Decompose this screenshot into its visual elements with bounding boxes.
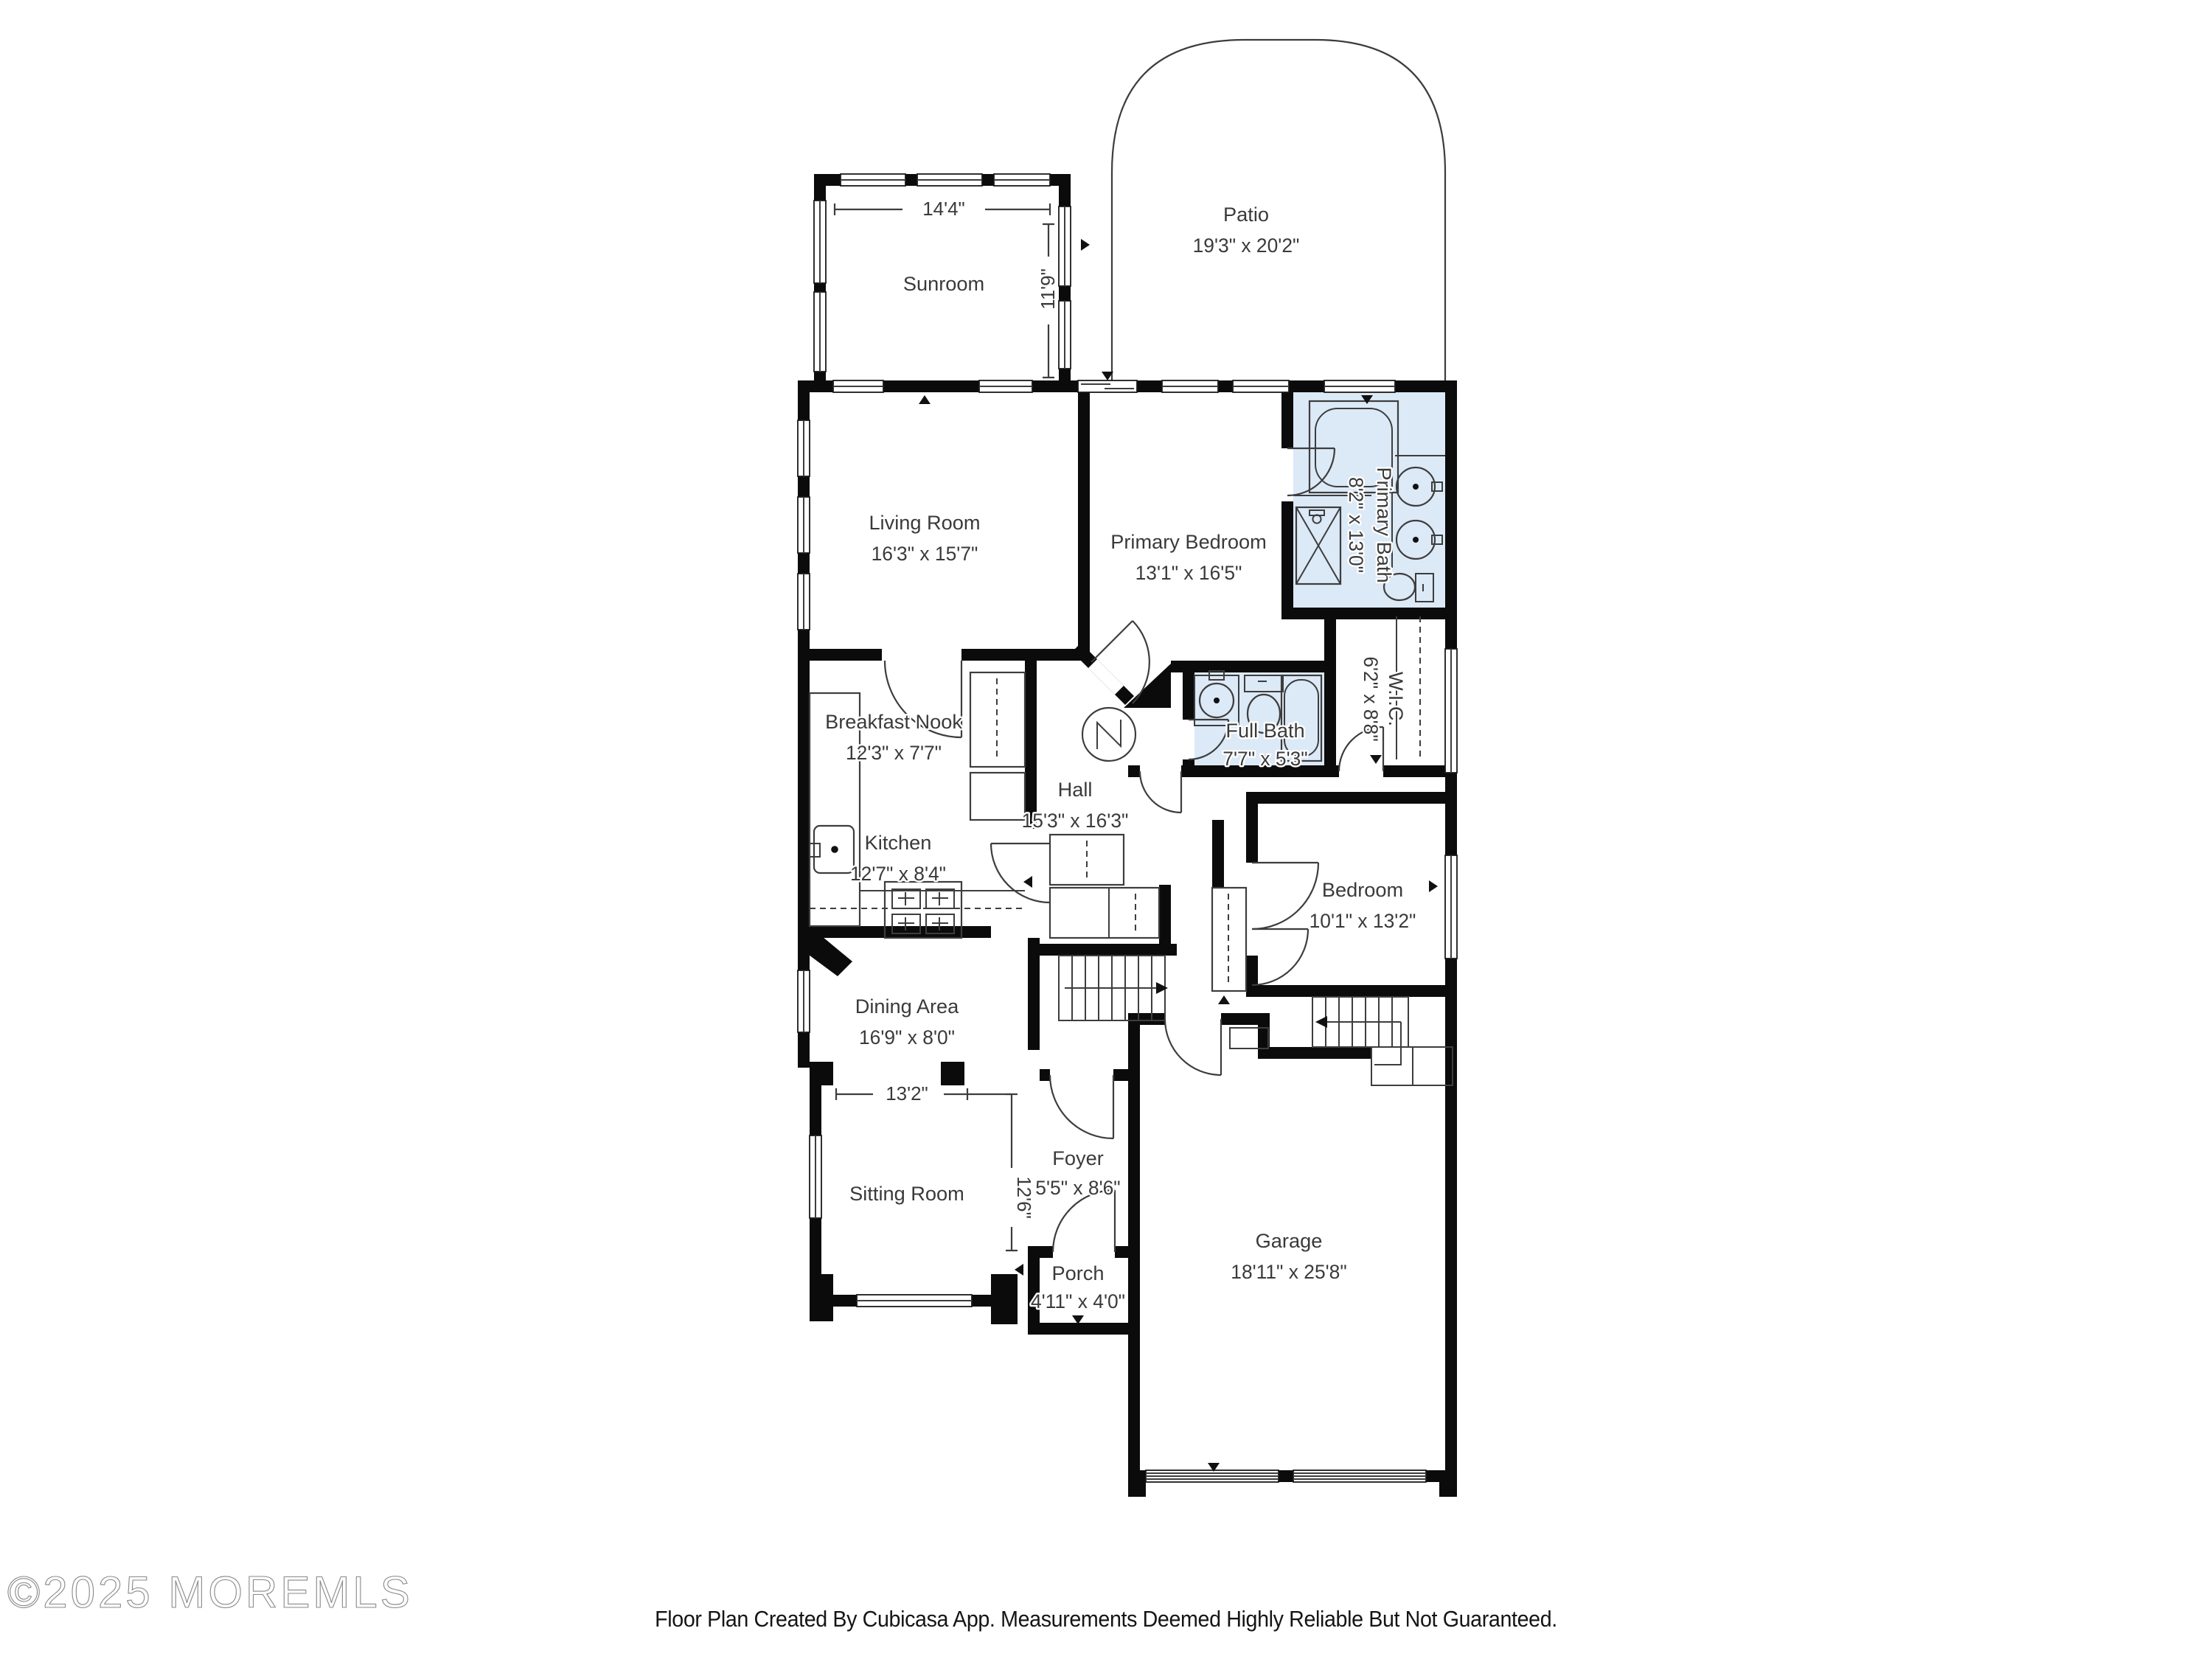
room-label-living-room: Living Room — [869, 511, 980, 534]
room-dims-kitchen: 12'7" x 8'4" — [850, 863, 946, 885]
room-dims-hall: 15'3" x 16'3" — [1022, 810, 1129, 832]
dimension-foyer-depth: 12'6" — [1013, 1176, 1035, 1219]
room-dims-living-room: 16'3" x 15'7" — [872, 543, 978, 565]
room-label-foyer: Foyer — [1052, 1147, 1104, 1169]
room-dims-wic: 6'2" x 8'8" — [1360, 656, 1382, 741]
room-label-sitting-room: Sitting Room — [849, 1182, 964, 1205]
room-dims-bedroom: 10'1" x 13'2" — [1310, 910, 1416, 932]
room-dims-garage: 18'11" x 25'8" — [1231, 1261, 1346, 1283]
dimension-sunroom-depth: 11'9" — [1037, 268, 1059, 310]
room-label-full-bath: Full Bath — [1225, 719, 1304, 742]
room-label-primary-bedroom: Primary Bedroom — [1110, 530, 1267, 553]
watermark: ©2025 MOREMLS — [7, 1568, 413, 1617]
floor-plan-page: 14'4" 11'9" 13'2" 12'6" Sunroom Patio 19… — [0, 0, 2212, 1659]
room-dims-primary-bath: 8'2" x 13'0" — [1345, 477, 1367, 573]
room-label-wic: W.I.C. — [1385, 672, 1408, 726]
room-dims-dining-area: 16'9" x 8'0" — [859, 1026, 955, 1048]
room-label-primary-bath: Primary Bath — [1373, 467, 1396, 582]
room-dims-porch: 4'11" x 4'0" — [1031, 1290, 1125, 1312]
room-label-breakfast-nook: Breakfast Nook — [825, 710, 962, 733]
room-dims-primary-bedroom: 13'1" x 16'5" — [1135, 562, 1242, 584]
room-dims-breakfast-nook: 12'3" x 7'7" — [846, 742, 942, 764]
room-dims-full-bath: 7'7" x 5'3" — [1222, 748, 1307, 770]
room-label-hall: Hall — [1058, 778, 1093, 801]
room-label-dining-area: Dining Area — [855, 995, 959, 1018]
dimension-sunroom-width: 14'4" — [922, 198, 965, 220]
room-dims-foyer: 5'5" x 8'6" — [1035, 1177, 1120, 1199]
floor-plan-image: 14'4" 11'9" 13'2" 12'6" Sunroom Patio 19… — [0, 0, 2212, 1659]
footer-disclaimer: Floor Plan Created By Cubicasa App. Meas… — [655, 1607, 1557, 1632]
room-label-kitchen: Kitchen — [865, 831, 932, 854]
room-label-sunroom: Sunroom — [903, 272, 984, 295]
room-label-porch: Porch — [1051, 1262, 1104, 1284]
dimension-sitting-room-width: 13'2" — [886, 1082, 928, 1105]
room-dims-patio: 19'3" x 20'2" — [1193, 234, 1300, 257]
room-label-bedroom: Bedroom — [1322, 878, 1403, 901]
room-label-garage: Garage — [1256, 1229, 1323, 1252]
room-label-patio: Patio — [1223, 203, 1269, 226]
